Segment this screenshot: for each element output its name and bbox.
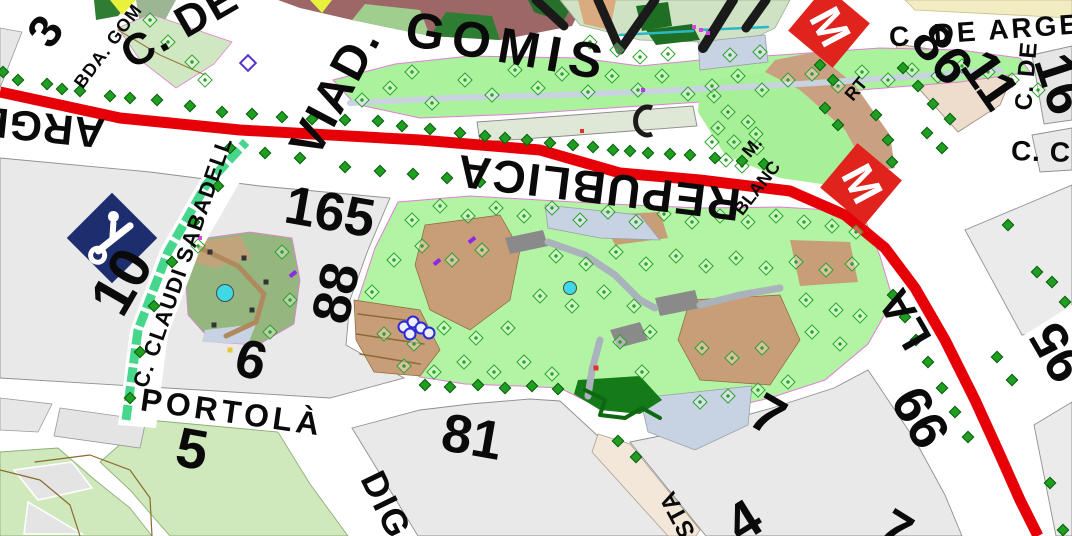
area-block-right-lower [1034,402,1072,536]
map-dot [594,366,599,371]
num-81: 81 [438,405,507,469]
street-c-de-vert: C. DE [1012,41,1042,112]
pond [216,284,234,302]
map-dot [699,28,703,32]
map-dot [264,280,269,285]
blue-ring-marker [404,328,417,341]
map-canvas[interactable]: MM 3ARGEC. DEBDA. GOMVIAD.GOMISREPUBLICA… [0,0,1072,536]
map-dot [250,308,255,313]
map-dot [641,88,645,92]
map-dot [212,323,217,328]
num-88: 88 [303,258,368,328]
map-dot [692,25,696,29]
num-165: 165 [281,178,379,247]
map-dot [706,31,710,35]
map-dot [242,256,247,261]
street-c-c: C. C [1011,137,1072,167]
map-dot [228,348,233,353]
map-dot [580,129,584,133]
area-block-right-upper [965,185,1072,335]
area-gray-below-portola [0,398,52,432]
map-dot [208,250,213,255]
pond [563,281,577,295]
blue-ring-marker [423,327,436,340]
